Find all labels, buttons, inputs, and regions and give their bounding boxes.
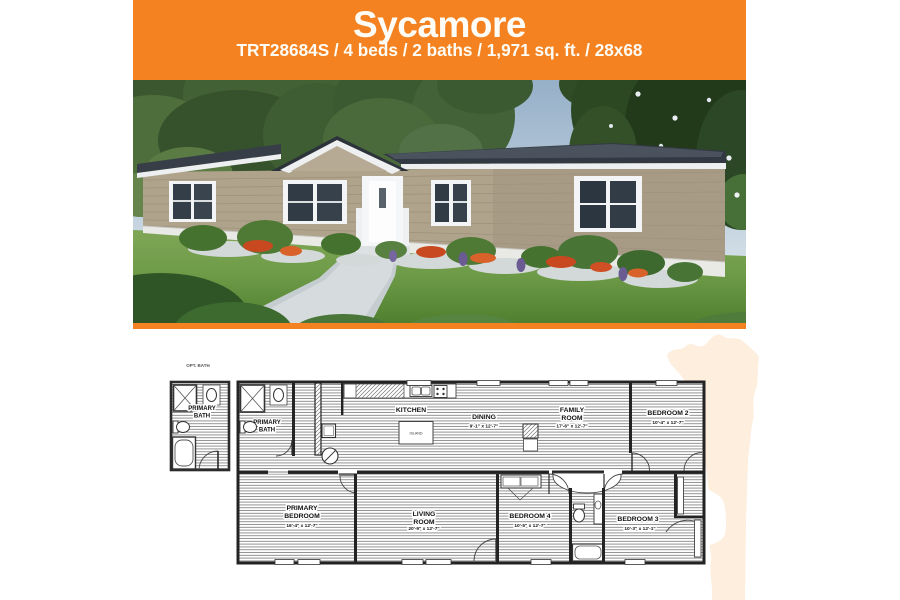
svg-text:BEDROOM 4: BEDROOM 4 [509,513,550,520]
svg-text:BATH: BATH [259,428,275,434]
svg-text:BEDROOM 2: BEDROOM 2 [647,410,688,417]
svg-text:17'-6" x 12'-7": 17'-6" x 12'-7" [556,424,587,430]
svg-text:ROOM: ROOM [413,519,434,526]
svg-text:ROOM: ROOM [561,415,582,422]
svg-text:DINING: DINING [472,414,496,421]
svg-text:LIVING: LIVING [413,511,436,518]
svg-text:10'-5" x 12'-7": 10'-5" x 12'-7" [514,523,545,529]
svg-text:PRIMARY: PRIMARY [286,505,318,512]
svg-text:FAMILY: FAMILY [560,407,585,414]
svg-text:BATH: BATH [194,414,210,420]
svg-text:20'-9" x 12'-7": 20'-9" x 12'-7" [408,526,439,532]
svg-text:PRIMARY: PRIMARY [253,420,280,426]
svg-text:9'-1" x 12'-7": 9'-1" x 12'-7" [470,424,499,430]
svg-text:ISLAND: ISLAND [410,432,423,436]
svg-text:PRIMARY: PRIMARY [188,406,215,412]
svg-text:10'-3" x 12'-1": 10'-3" x 12'-1" [624,526,655,532]
svg-text:BEDROOM 3: BEDROOM 3 [617,516,658,523]
svg-text:16'-4" x 12'-7": 16'-4" x 12'-7" [286,523,317,529]
svg-text:KITCHEN: KITCHEN [396,407,426,414]
svg-text:OPT. BATH: OPT. BATH [186,363,209,368]
svg-text:10'-4" x 12'-7": 10'-4" x 12'-7" [652,420,683,426]
svg-text:BEDROOM: BEDROOM [284,513,320,520]
